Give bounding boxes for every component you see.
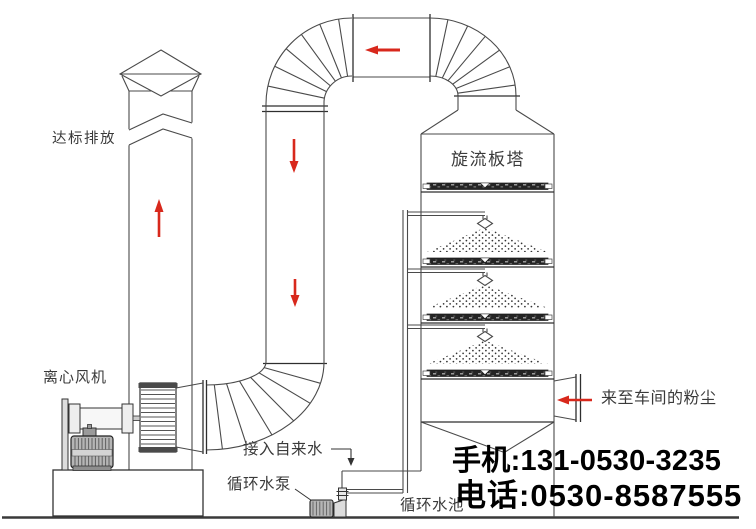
downcomer-arrow-1 <box>290 139 299 173</box>
elbow-top-left <box>266 18 352 104</box>
tower-neck-hood <box>421 96 554 134</box>
spray-nozzle <box>478 332 493 342</box>
fan-housing <box>139 383 178 452</box>
label-emission: 达标排放 <box>52 131 116 148</box>
inlet-left-arrow <box>557 396 592 405</box>
spray-nozzle <box>478 219 493 229</box>
label-cyclone-plate-tower: 旋流板塔 <box>451 150 525 170</box>
downcomer-arrow-2 <box>291 279 300 307</box>
label-circulating-pump: 循环水泵 <box>227 476 291 494</box>
label-tap-water: 接入自来水 <box>243 441 323 459</box>
diagram-canvas: 达标排放 离心风机 旋流板塔 来至车间的粉尘 接入自来水 循环水泵 循环水池 手… <box>0 0 756 529</box>
tap-water-pipe <box>331 449 355 466</box>
elbow-top-right <box>430 18 520 96</box>
spray-cone <box>427 285 548 309</box>
stack-up-arrow <box>155 199 164 237</box>
contact-phone-number: 电话:0530-8587555 <box>455 480 742 511</box>
centrifugal-fan-unit <box>53 383 203 516</box>
stack-rain-cap <box>120 50 201 96</box>
tray-plate <box>423 370 552 377</box>
spray-cone <box>427 228 548 253</box>
fan-pedestal <box>53 470 203 516</box>
spray-cone <box>427 341 548 365</box>
circulation-pump <box>295 488 349 517</box>
tray-plate <box>423 314 552 321</box>
duct-horizontal-top <box>353 14 430 82</box>
label-dust-inlet: 来至车间的粉尘 <box>601 390 717 408</box>
spray-cones <box>427 228 548 365</box>
tray-plate <box>423 183 552 190</box>
contact-mobile-number: 手机:131-0530-3235 <box>452 447 721 476</box>
label-centrifugal-fan: 离心风机 <box>43 369 107 386</box>
stack-break <box>127 113 194 146</box>
spray-nozzle <box>478 276 493 286</box>
tray-plate <box>423 258 552 265</box>
inlet-duct <box>554 374 592 422</box>
top-duct-left-arrow <box>365 46 400 55</box>
downcomer-duct <box>262 104 328 364</box>
